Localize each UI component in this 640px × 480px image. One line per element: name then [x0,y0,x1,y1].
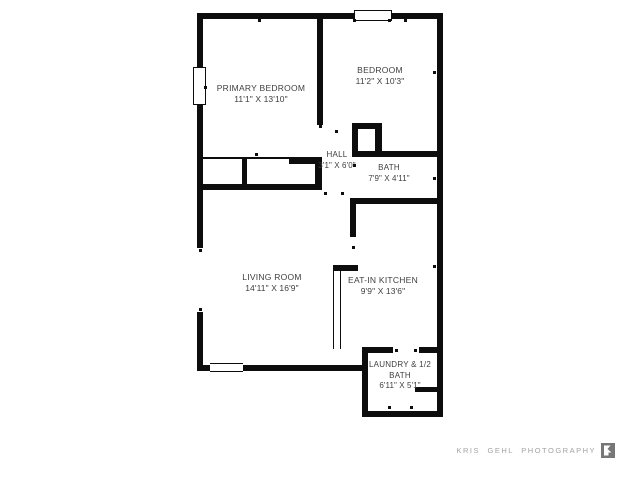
wall-segment [197,365,211,371]
door-tick [395,349,398,352]
door-tick [341,192,344,195]
room-label-bedroom: BEDROOM 11'2" x 10'3" [305,65,455,87]
wall-segment [242,159,247,186]
wall-segment [350,198,443,204]
room-label-eat-in-kitchen: EAT-IN KITCHEN 9'9" x 13'6" [308,275,458,297]
room-name: EAT-IN KITCHEN [308,275,458,286]
door-tick [433,265,436,268]
room-name: HALL [302,150,372,161]
door-tick [410,406,413,409]
door-tick [255,153,258,156]
wall-segment [350,204,356,237]
wall-segment [362,411,443,417]
wall-segment [375,129,382,151]
door-tick [199,308,202,311]
room-dimensions: 7'9" x 4'11" [334,174,444,185]
room-label-laundry-half-bath: LAUNDRY & 1/2 BATH 6'11" x 5'1" [360,360,440,392]
photography-logo-icon [601,443,615,458]
room-name: BEDROOM [305,65,455,76]
room-dimensions: 9'9" x 13'6" [308,286,458,297]
watermark-text: KRIS GEHL PHOTOGRAPHY [456,446,596,455]
door-tick [404,19,407,22]
wall-segment [197,312,203,371]
room-dimensions: 6'11" x 5'1" [360,381,440,392]
door-tick [353,19,356,22]
wall-segment [197,13,203,248]
door-tick [324,192,327,195]
door-tick [352,246,355,249]
door-tick [258,19,261,22]
room-name: BATH [334,163,444,174]
window [210,363,243,372]
wall-segment [243,365,368,371]
window [354,10,392,21]
wall-segment [197,184,321,190]
room-label-bath: BATH 7'9" x 4'11" [334,163,444,184]
room-dimensions: 11'1" x 13'10" [186,94,336,105]
door-tick [388,19,391,22]
room-dimensions: 11'2" x 10'3" [305,76,455,87]
door-tick [319,125,322,128]
floorplan-image: PRIMARY BEDROOM 11'1" x 13'10" BEDROOM 1… [0,0,640,480]
door-tick [199,249,202,252]
wall-segment [419,347,443,353]
door-tick [414,349,417,352]
watermark: KRIS GEHL PHOTOGRAPHY [430,441,615,459]
room-name: LAUNDRY & 1/2 BATH [360,360,440,381]
wall-segment [352,129,358,151]
door-tick [388,406,391,409]
door-tick [335,130,338,133]
